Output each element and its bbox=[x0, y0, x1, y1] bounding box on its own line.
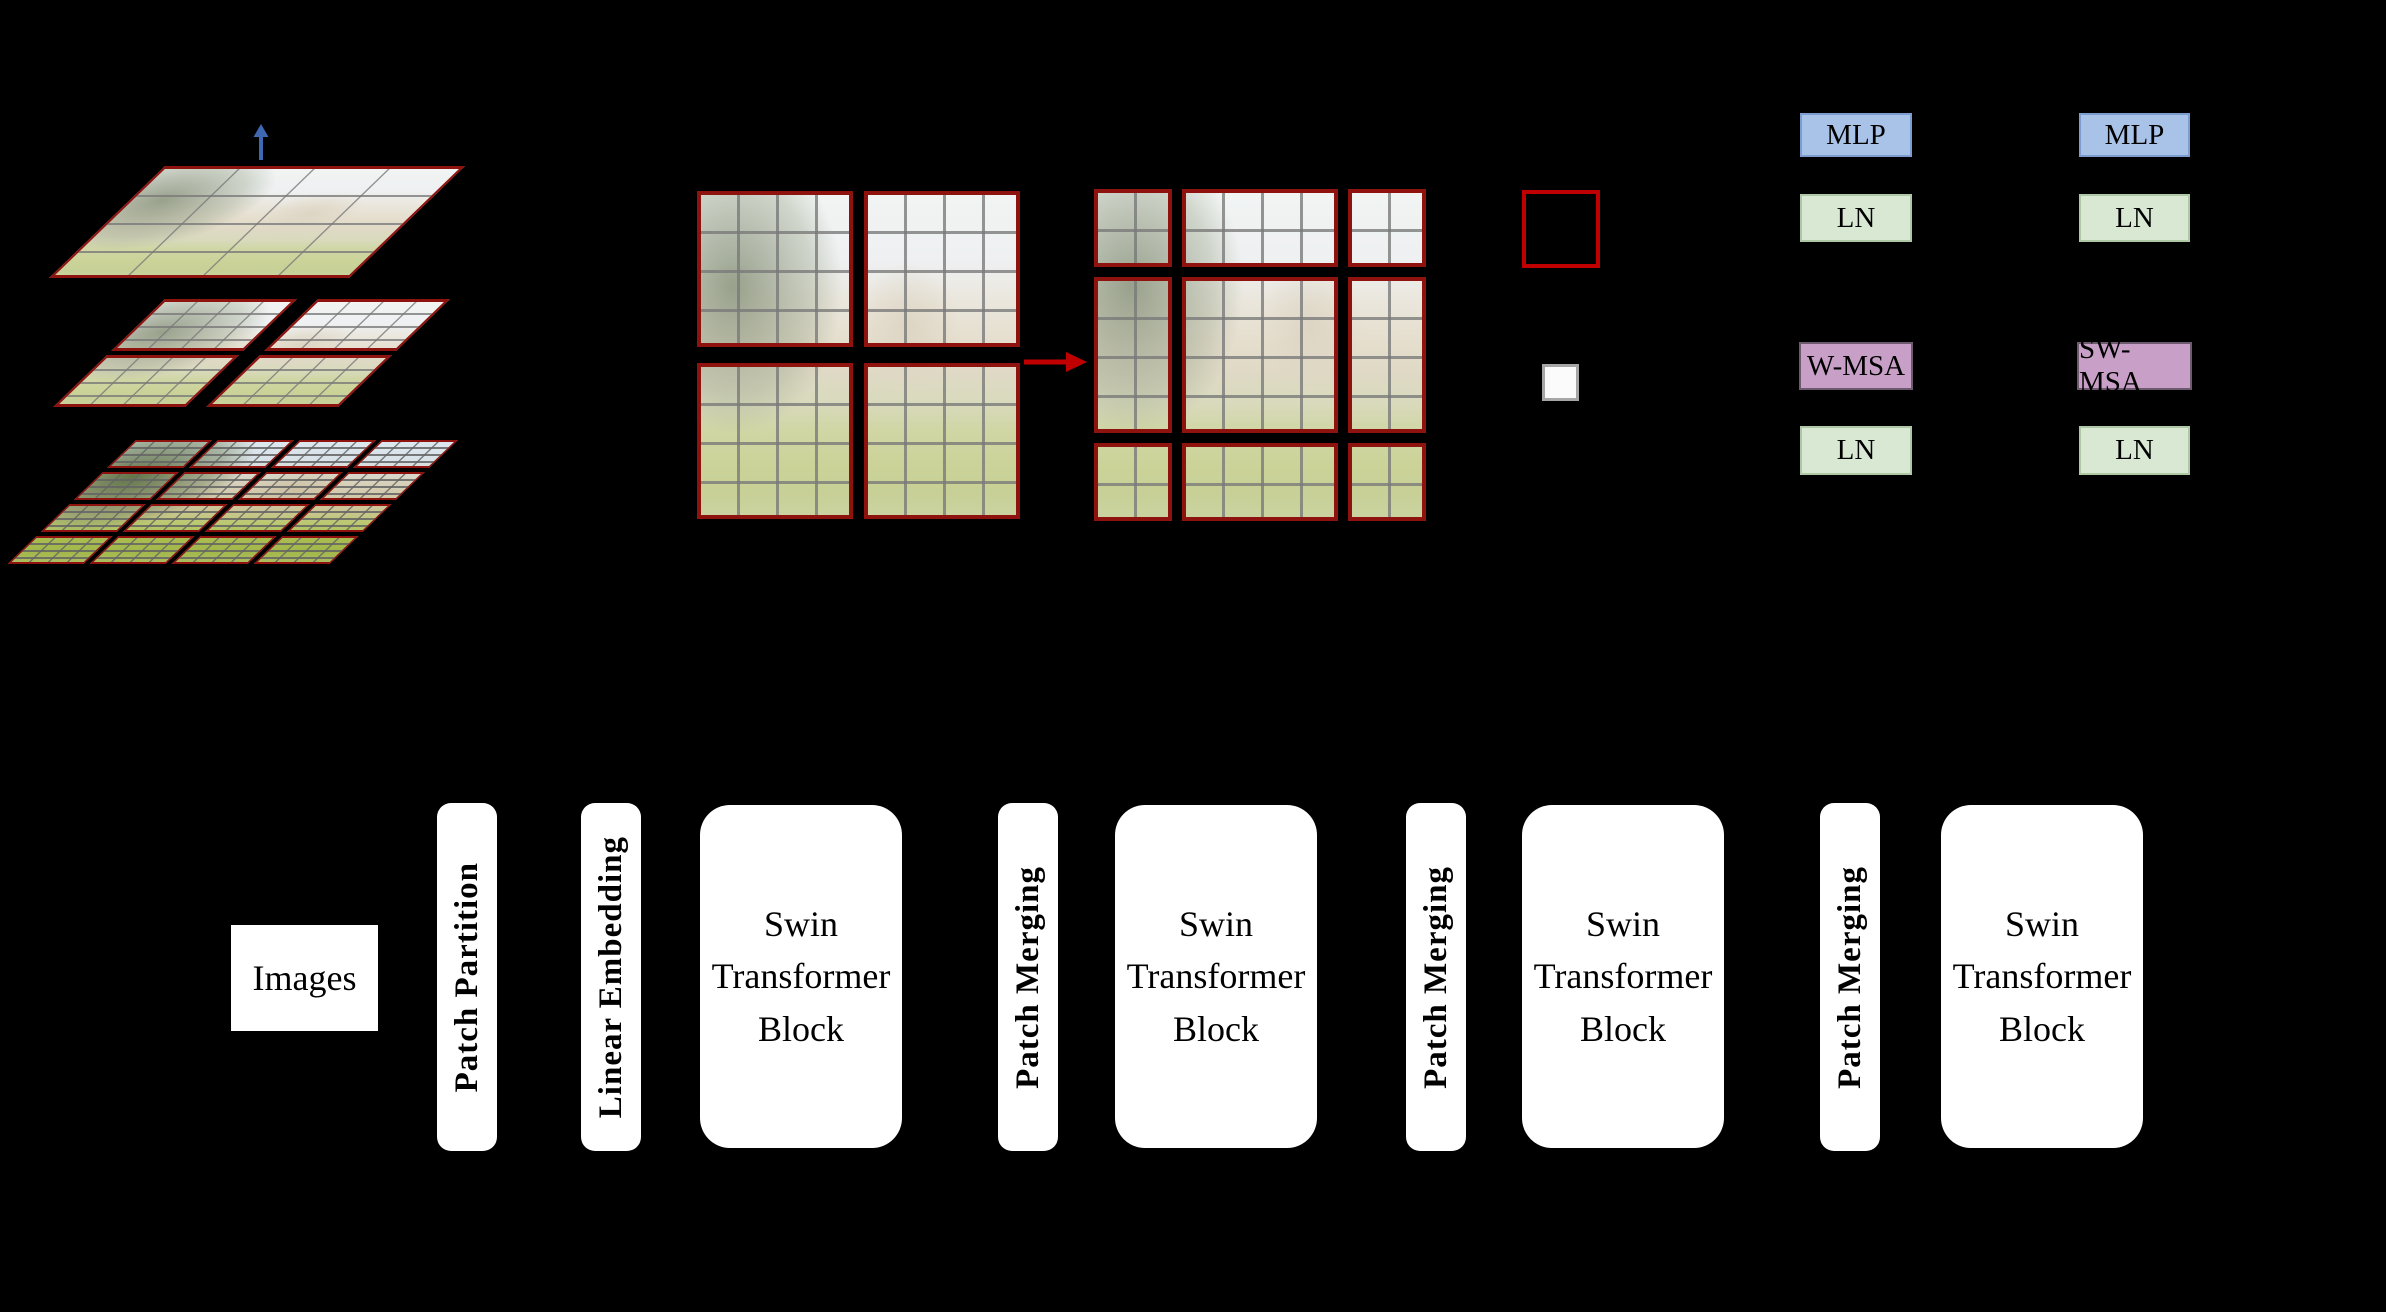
shift-arrow-icon bbox=[1024, 349, 1088, 375]
ln-box: LN bbox=[2079, 426, 2190, 475]
mlp-box: MLP bbox=[1800, 113, 1912, 157]
swin-block-label: Swin Transformer Block bbox=[1953, 898, 2132, 1055]
swin-transformer-block-2: Swin Transformer Block bbox=[1115, 805, 1317, 1148]
mlp-box: MLP bbox=[2079, 113, 2190, 157]
patch-merging-bar-2: Patch Merging bbox=[1406, 803, 1466, 1151]
patch-merging-bar-1: Patch Merging bbox=[998, 803, 1058, 1151]
images-label: Images bbox=[253, 957, 357, 999]
hierarchy-stack bbox=[0, 0, 520, 620]
partition-window bbox=[1182, 189, 1338, 267]
swin-architecture-figure: MLP LN W-MSA LN MLP LN SW-MSA LN Images … bbox=[0, 0, 2386, 1312]
swin-block-label: Swin Transformer Block bbox=[1127, 898, 1306, 1055]
patch-partition-bar: Patch Partition bbox=[437, 803, 497, 1151]
window-grid-regular bbox=[697, 191, 1020, 519]
partition-window bbox=[49, 166, 465, 278]
up-arrow-icon bbox=[252, 124, 270, 160]
linear-embedding-bar: Linear Embedding bbox=[581, 803, 641, 1151]
partition-window bbox=[1348, 443, 1426, 521]
partition-window bbox=[1182, 277, 1338, 433]
partition-window bbox=[1094, 443, 1172, 521]
partition-window bbox=[1348, 277, 1426, 433]
partition-window bbox=[1348, 189, 1426, 267]
patch-merging-bar-3: Patch Merging bbox=[1820, 803, 1880, 1151]
swin-transformer-block-4: Swin Transformer Block bbox=[1941, 805, 2143, 1148]
swin-transformer-block-1: Swin Transformer Block bbox=[700, 805, 902, 1148]
swin-block-label: Swin Transformer Block bbox=[712, 898, 891, 1055]
patch-merging-label: Patch Merging bbox=[1010, 866, 1047, 1089]
window-grid-shifted bbox=[1094, 189, 1426, 521]
patch-merging-label: Patch Merging bbox=[1418, 866, 1455, 1089]
legend-window-swatch bbox=[1522, 190, 1600, 268]
patch-merging-label: Patch Merging bbox=[1832, 866, 1869, 1089]
feature-map-level-2 bbox=[53, 299, 450, 407]
swmsa-box: SW-MSA bbox=[2077, 342, 2192, 390]
images-box: Images bbox=[231, 925, 378, 1031]
partition-window bbox=[206, 355, 392, 407]
partition-window bbox=[1094, 189, 1172, 267]
partition-window bbox=[1094, 277, 1172, 433]
partition-window bbox=[697, 191, 853, 347]
wmsa-box: W-MSA bbox=[1799, 342, 1913, 390]
partition-window bbox=[864, 191, 1020, 347]
patch-partition-label: Patch Partition bbox=[449, 862, 486, 1092]
swin-block-label: Swin Transformer Block bbox=[1534, 898, 1713, 1055]
partition-window bbox=[1182, 443, 1338, 521]
linear-embedding-label: Linear Embedding bbox=[593, 836, 630, 1118]
ln-box: LN bbox=[1800, 426, 1912, 475]
partition-window bbox=[264, 299, 450, 351]
partition-window bbox=[697, 363, 853, 519]
partition-window bbox=[53, 355, 239, 407]
feature-map-level-3 bbox=[8, 440, 458, 564]
legend-patch-swatch bbox=[1542, 364, 1579, 401]
partition-window bbox=[111, 299, 297, 351]
feature-map-level-1 bbox=[49, 166, 465, 278]
swin-transformer-block-3: Swin Transformer Block bbox=[1522, 805, 1724, 1148]
partition-window bbox=[864, 363, 1020, 519]
ln-box: LN bbox=[1800, 194, 1912, 242]
ln-box: LN bbox=[2079, 194, 2190, 242]
